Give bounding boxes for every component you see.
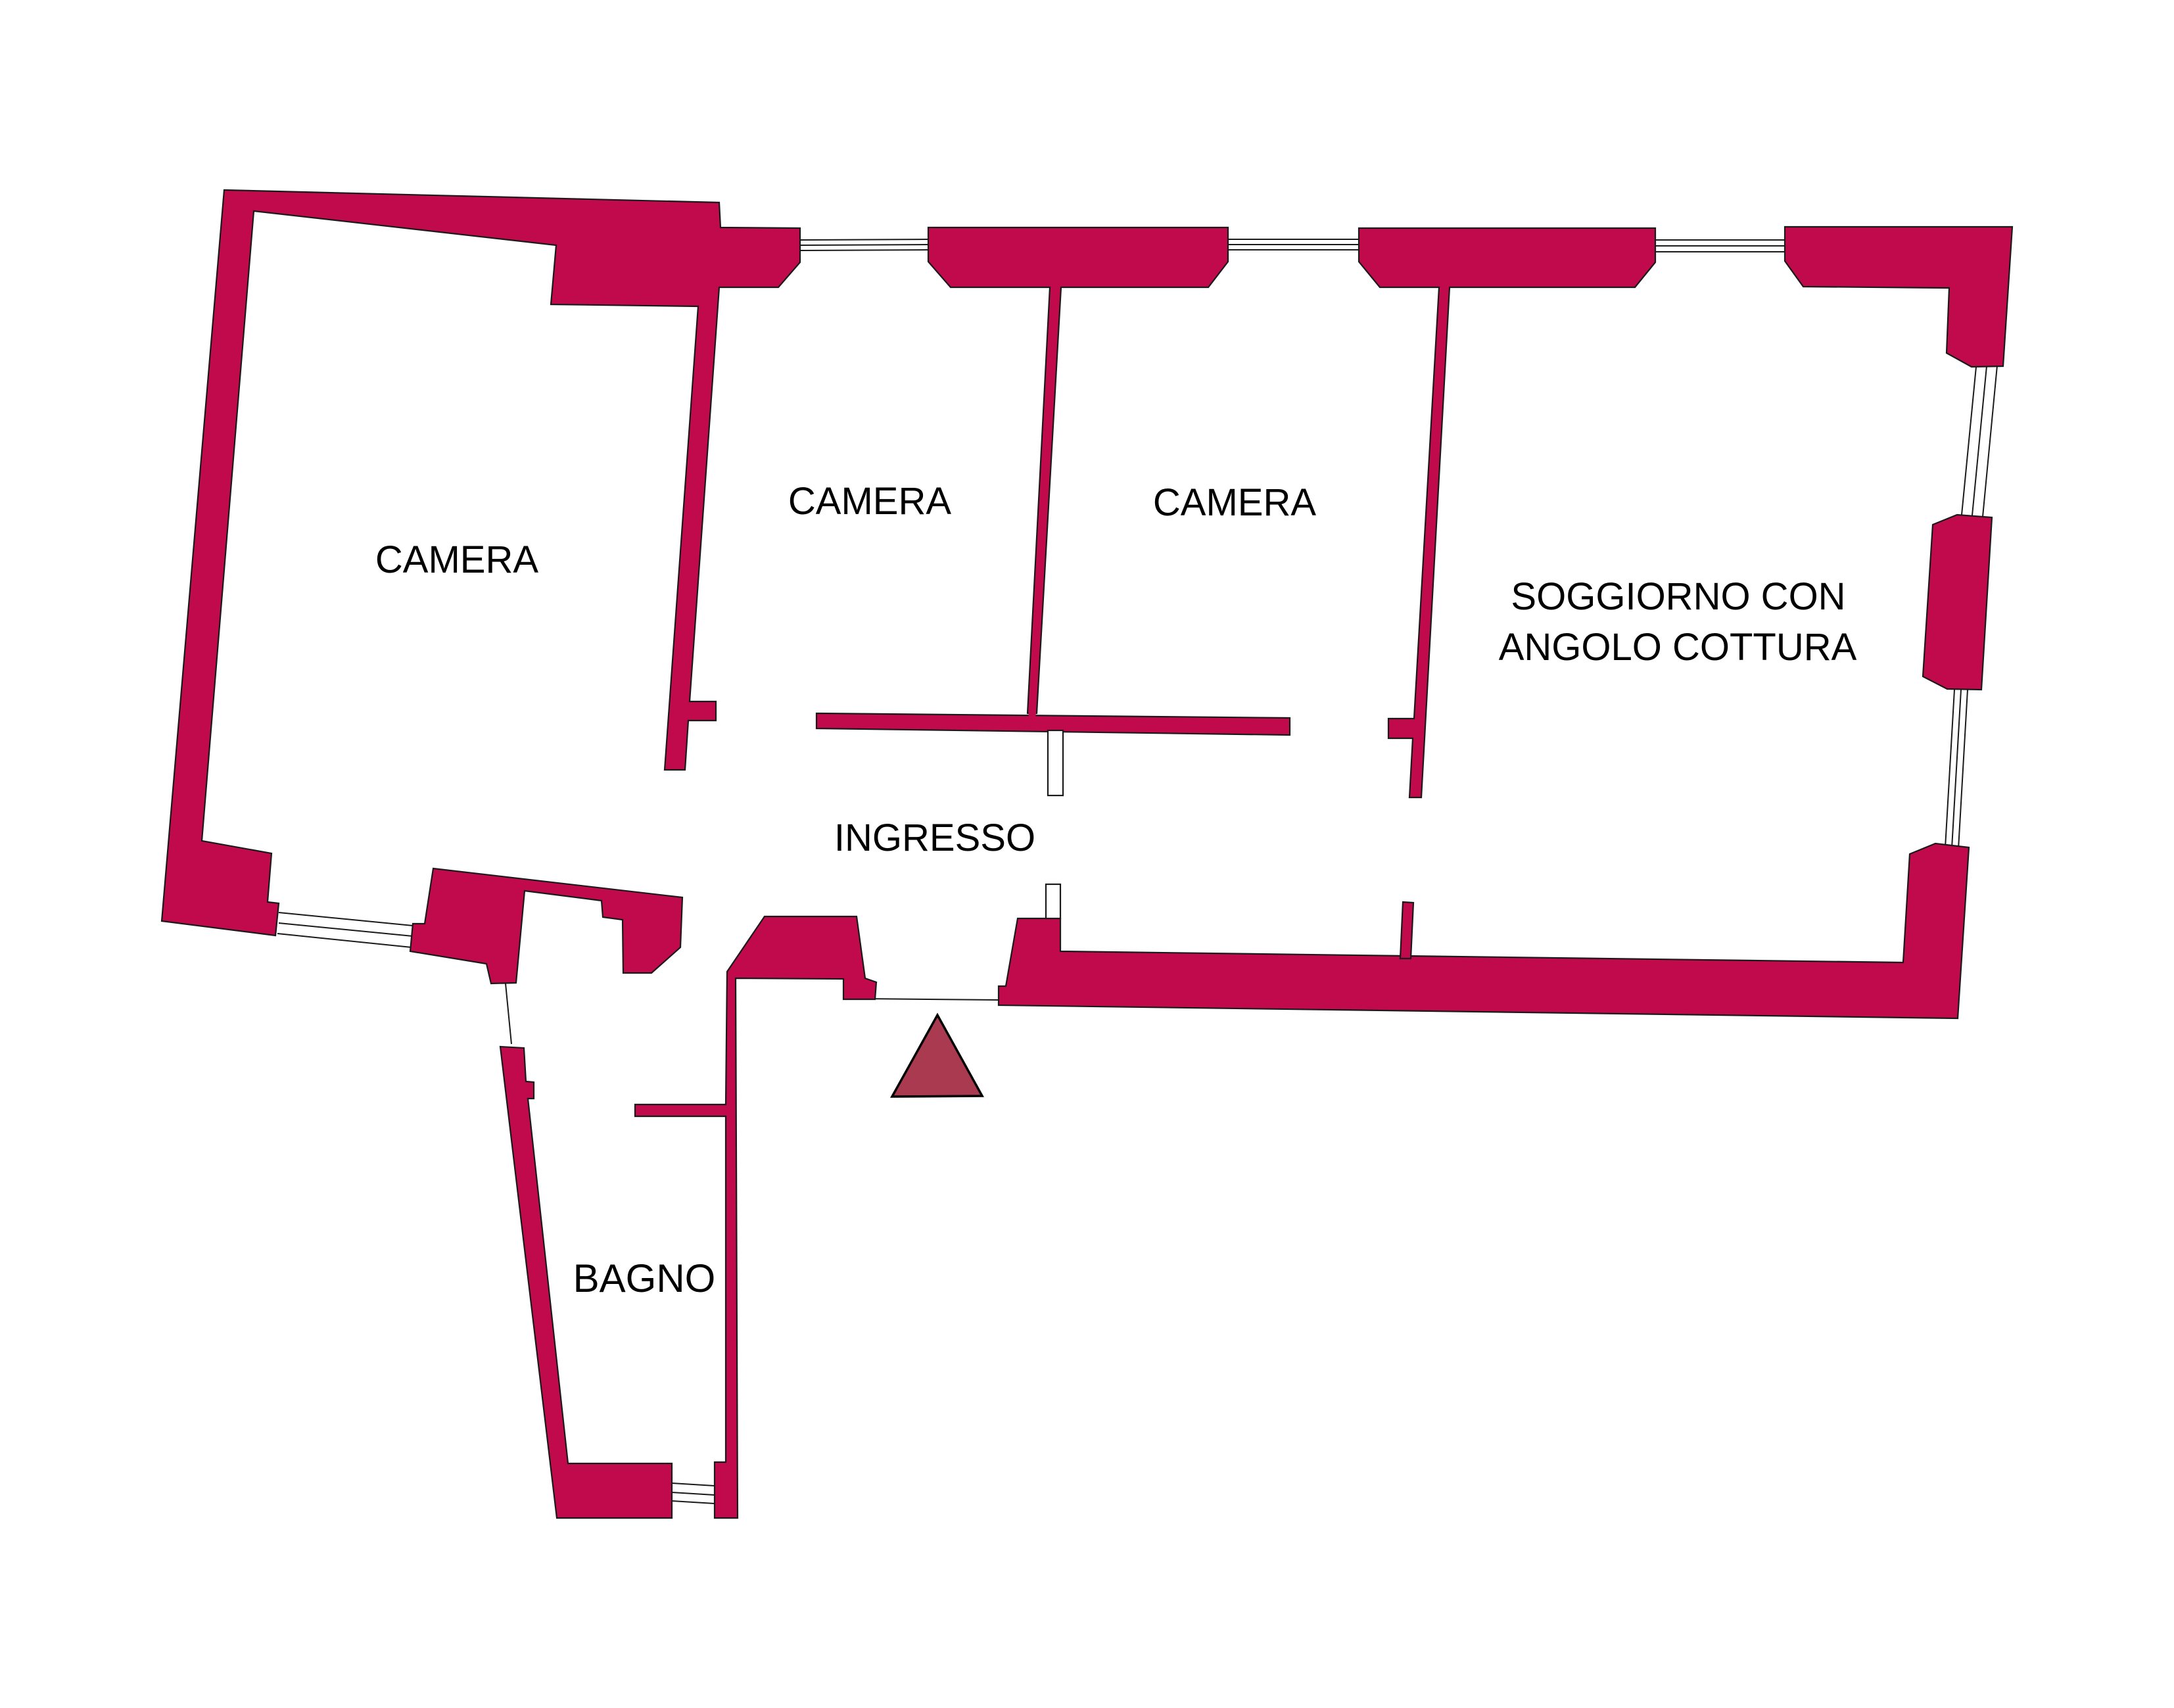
- svg-text:BAGNO: BAGNO: [573, 1256, 716, 1300]
- svg-text:SOGGIORNO CON: SOGGIORNO CON: [1511, 575, 1845, 618]
- svg-text:CAMERA: CAMERA: [1153, 481, 1316, 524]
- svg-text:CAMERA: CAMERA: [375, 538, 538, 581]
- svg-text:INGRESSO: INGRESSO: [834, 817, 1035, 859]
- svg-text:CAMERA: CAMERA: [788, 480, 951, 523]
- svg-text:ANGOLO COTTURA: ANGOLO COTTURA: [1499, 626, 1857, 669]
